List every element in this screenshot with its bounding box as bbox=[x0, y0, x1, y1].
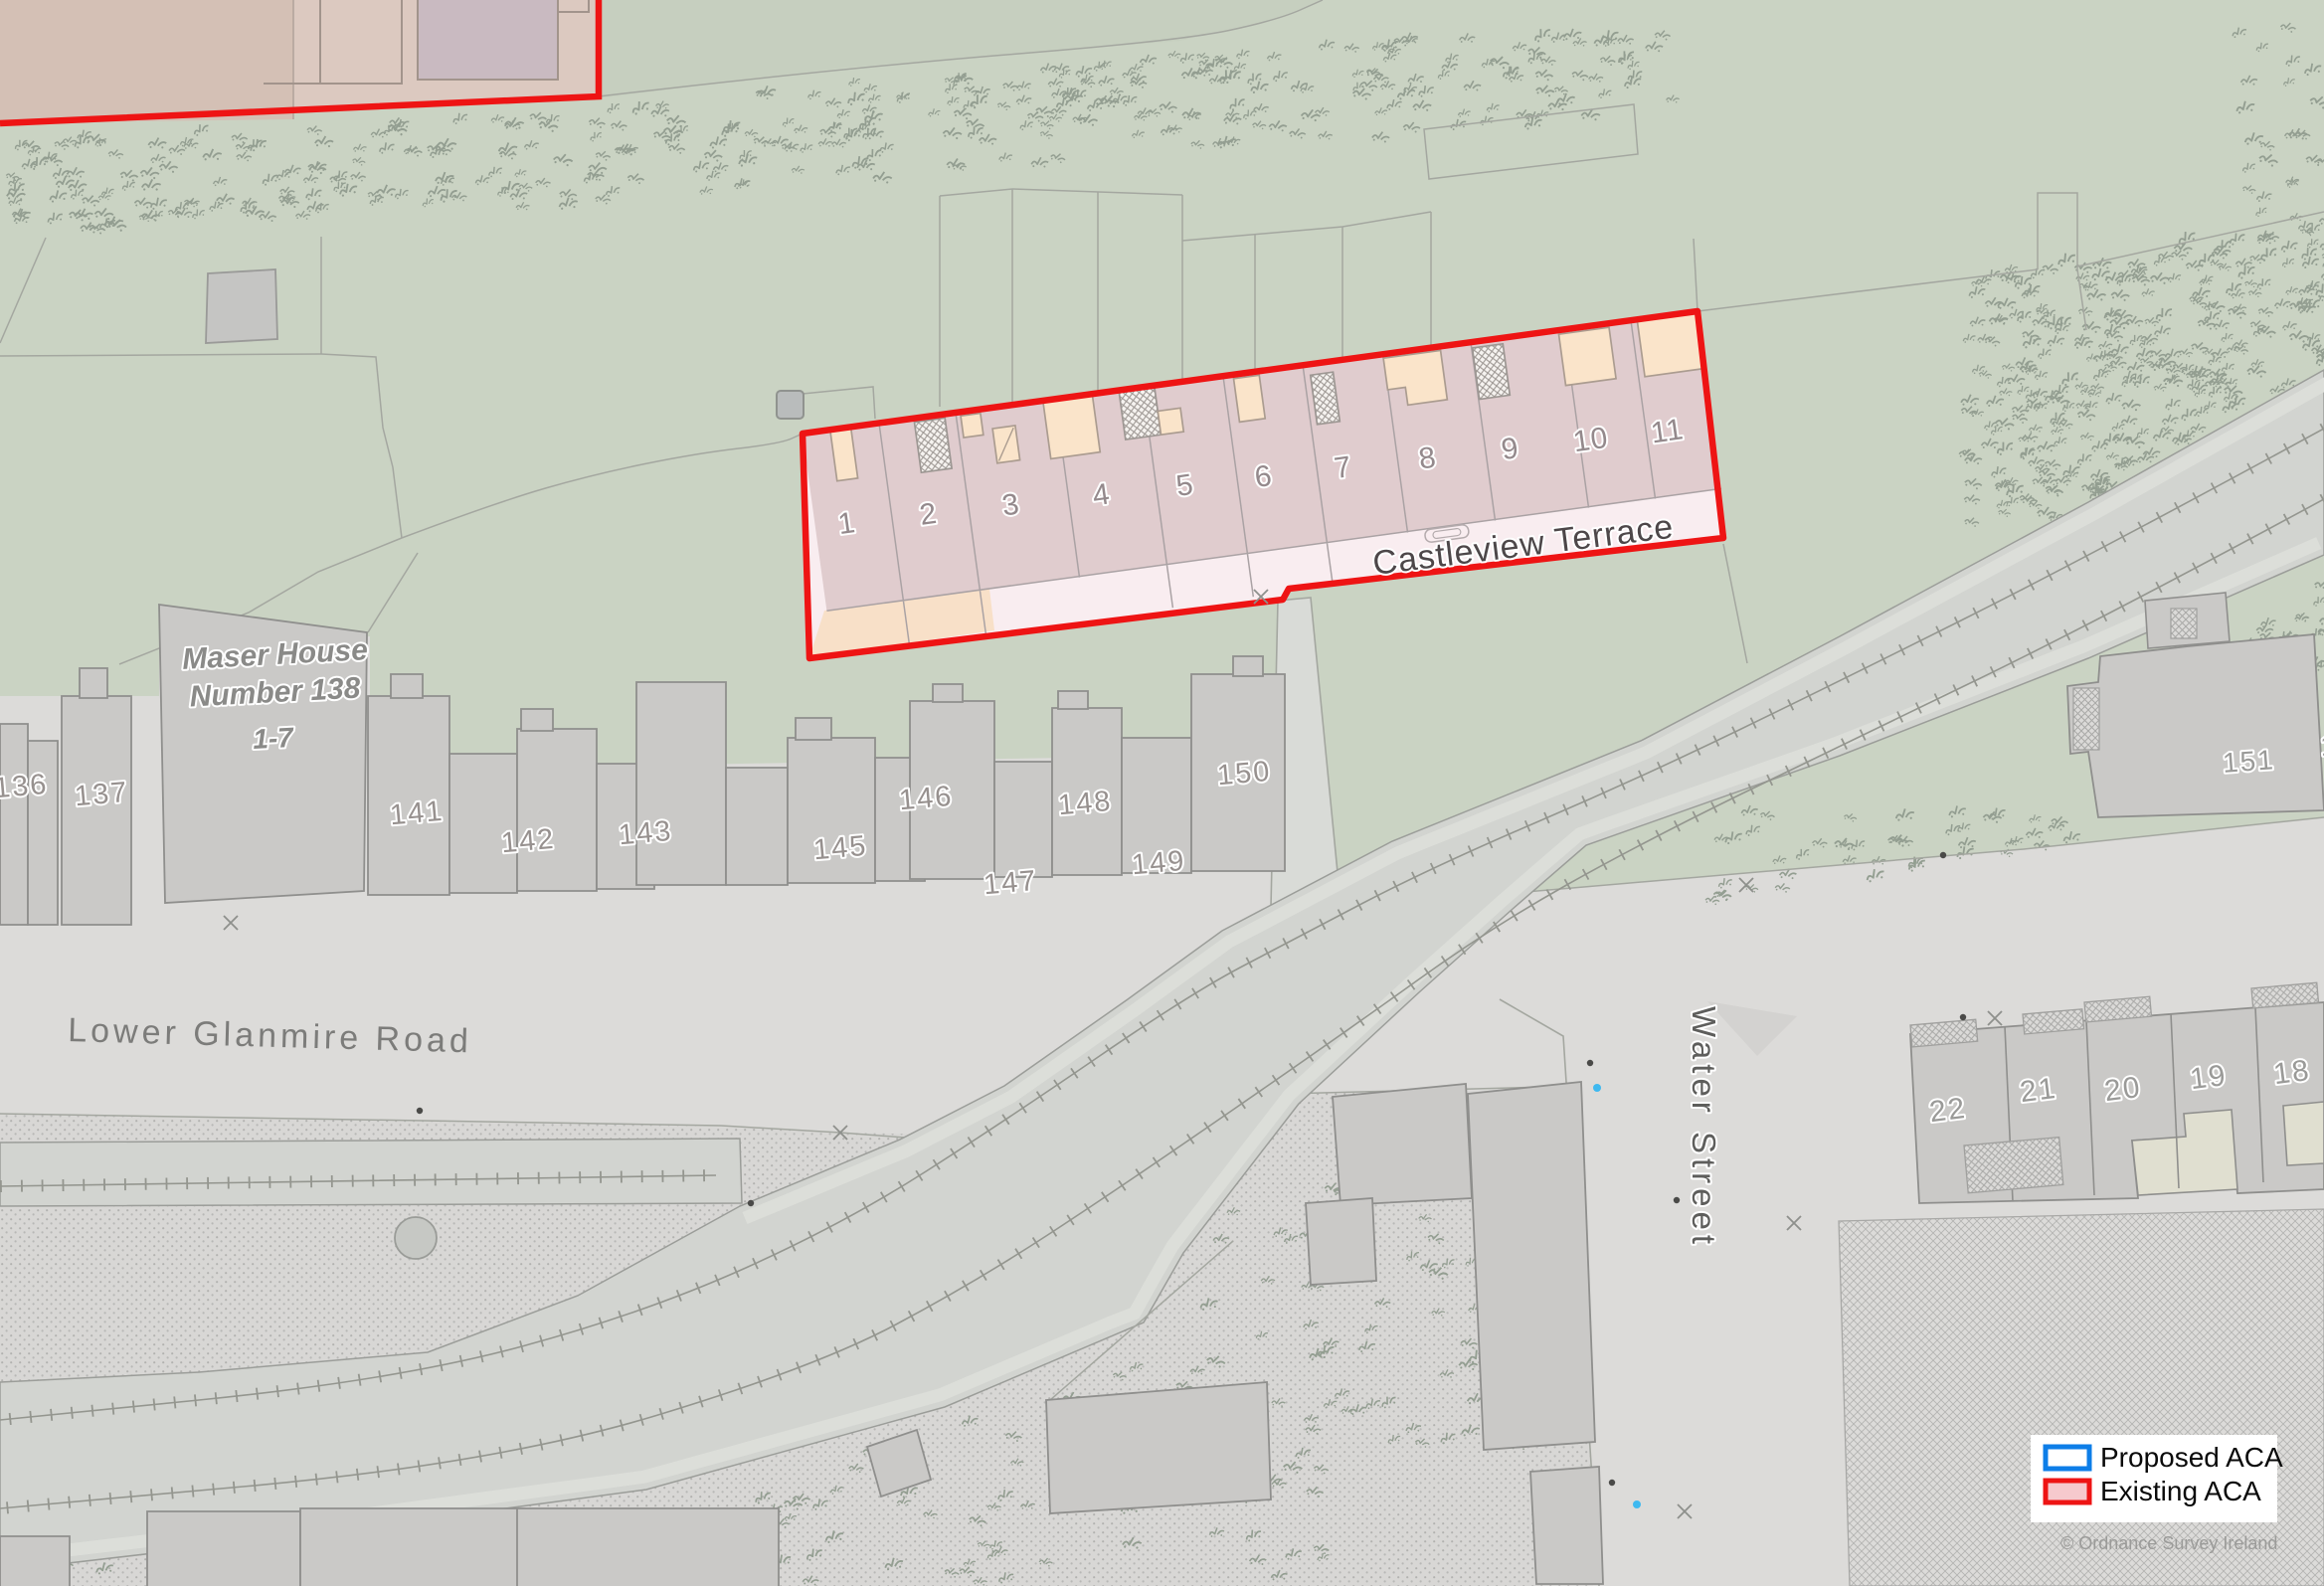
svg-text:147: 147 bbox=[983, 865, 1039, 902]
svg-text:1-7: 1-7 bbox=[252, 722, 294, 755]
svg-text:148: 148 bbox=[1057, 786, 1114, 822]
svg-text:21: 21 bbox=[2018, 1072, 2058, 1109]
svg-text:137: 137 bbox=[74, 777, 130, 813]
svg-text:19: 19 bbox=[2188, 1059, 2229, 1096]
svg-text:149: 149 bbox=[1131, 845, 1187, 882]
svg-text:150: 150 bbox=[1216, 756, 1273, 793]
svg-text:10: 10 bbox=[1571, 422, 1611, 459]
svg-text:146: 146 bbox=[898, 781, 955, 817]
svg-text:22: 22 bbox=[1927, 1092, 1968, 1129]
svg-text:Proposed ACA: Proposed ACA bbox=[2100, 1442, 2283, 1473]
svg-text:151: 151 bbox=[2222, 744, 2276, 779]
svg-text:© Ordnance Survey Ireland: © Ordnance Survey Ireland bbox=[2060, 1533, 2277, 1553]
svg-text:11: 11 bbox=[1649, 413, 1686, 449]
svg-text:145: 145 bbox=[812, 830, 869, 867]
svg-text:Water Street: Water Street bbox=[1686, 1006, 1722, 1249]
svg-text:141: 141 bbox=[389, 795, 446, 832]
svg-text:20: 20 bbox=[2102, 1071, 2143, 1108]
svg-text:Existing ACA: Existing ACA bbox=[2100, 1476, 2261, 1506]
svg-text:18: 18 bbox=[2271, 1054, 2312, 1091]
svg-text:136: 136 bbox=[0, 769, 50, 805]
svg-text:143: 143 bbox=[618, 815, 674, 852]
svg-text:142: 142 bbox=[500, 823, 557, 860]
